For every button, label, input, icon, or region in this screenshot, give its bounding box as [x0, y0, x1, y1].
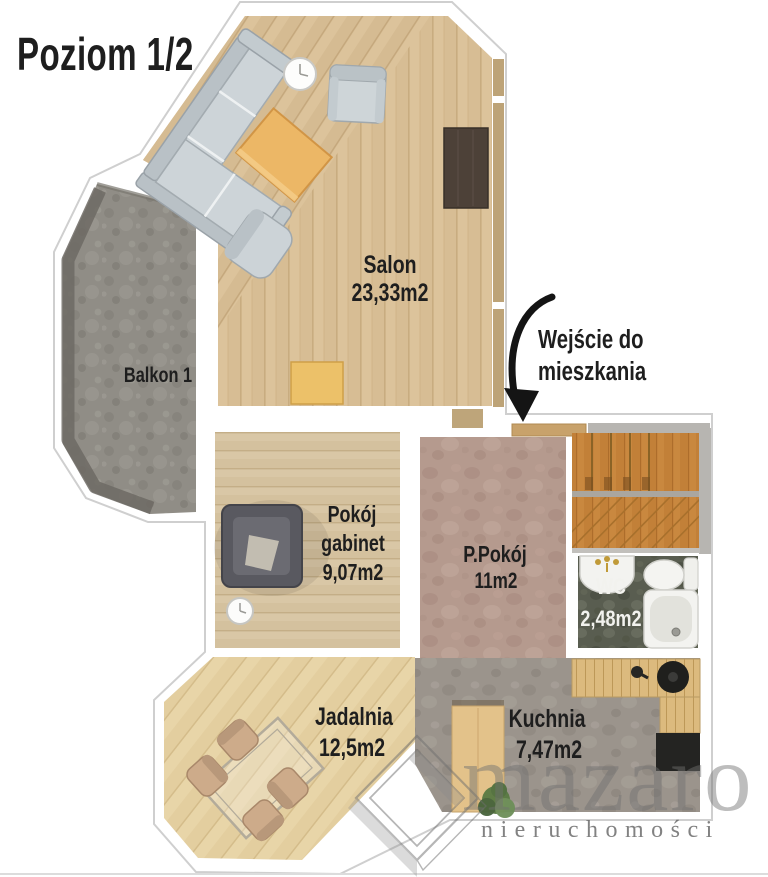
tv-cabinet — [444, 128, 488, 208]
page-title: Poziom 1/2 — [17, 30, 194, 80]
room-ppokoj: P.Pokój 11m2 — [420, 409, 586, 658]
salon-label: Salon — [363, 251, 416, 279]
wall-gap — [493, 96, 504, 103]
bathtub — [644, 590, 698, 648]
floor-plan-svg: Salon 23,33m2 Balkon 1 Pokój gabinet 9,0… — [0, 0, 768, 877]
wall-gap — [493, 302, 504, 309]
wall-door-panel — [452, 409, 483, 428]
jadalnia-label: Jadalnia — [315, 703, 393, 731]
wc-area-label: 2,48m2 — [580, 607, 641, 631]
watermark-brand: mazaro — [462, 725, 754, 831]
stairs-landing-divider — [572, 491, 700, 497]
salon-area-label: 23,33m2 — [352, 279, 429, 307]
room-balkon — [63, 184, 196, 514]
stairs-right-wall — [699, 428, 711, 554]
room-gabinet: Pokój gabinet 9,07m2 — [214, 432, 400, 648]
gabinet-label-line1: Pokój — [328, 502, 377, 528]
ppokoj-label: P.Pokój — [463, 542, 526, 568]
stairs-bottom-edge — [572, 548, 700, 553]
entry-annotation-line2: mieszkania — [538, 357, 647, 386]
jadalnia-area-label: 12,5m2 — [319, 734, 385, 762]
clock-icon — [284, 58, 316, 90]
ppokoj-area-label: 11m2 — [475, 569, 518, 594]
floor-plan-image: Salon 23,33m2 Balkon 1 Pokój gabinet 9,0… — [0, 0, 768, 877]
staircase — [556, 423, 718, 554]
room-wc: WC 2,48m2 — [578, 556, 698, 648]
armchair — [328, 65, 387, 124]
gabinet-label-line2: gabinet — [321, 531, 385, 557]
watermark-subtitle: nieruchomości — [481, 817, 720, 843]
sideboard — [291, 362, 343, 404]
clock-icon — [227, 598, 253, 624]
toilet — [644, 558, 698, 590]
wc-label: WC — [596, 575, 626, 599]
entry-annotation: Wejście do mieszkania — [504, 297, 647, 422]
stairs-entry-step — [588, 423, 710, 434]
salon-right-wall-finish — [493, 59, 504, 407]
gabinet-area-label: 9,07m2 — [323, 560, 384, 586]
entry-annotation-line1: Wejście do — [538, 325, 643, 354]
office-sofa — [222, 505, 302, 587]
balkon-label: Balkon 1 — [124, 363, 192, 386]
